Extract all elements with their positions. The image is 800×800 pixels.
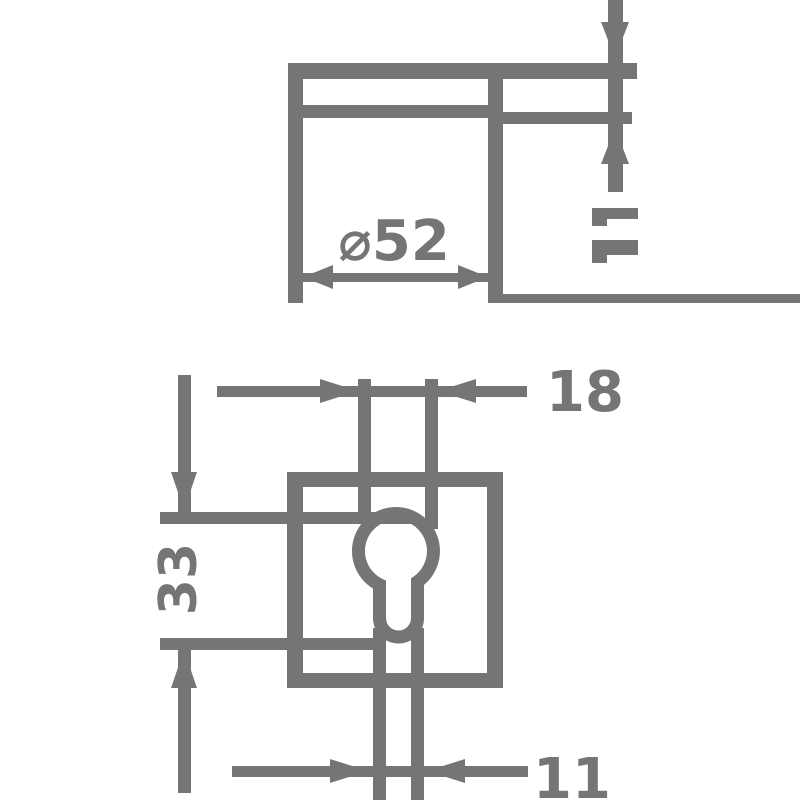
top-dimension-line [217,386,527,397]
side-left-edge-line [288,63,303,303]
keyhole-bottom-extension-line [160,638,385,650]
square-plate-outline [287,472,503,688]
keyhole-stem-width-label: 11 [533,747,611,800]
clipped-dimension-label-mark [592,240,638,263]
diameter-arrow-left-icon [303,265,333,289]
keyhole-outline [358,514,433,637]
diameter-dimension-label: ⌀52 [338,209,450,274]
keyhole-width-extension-left [358,379,371,521]
side-profile-view: ⌀52 [288,0,800,303]
dimension-drawing: ⌀52 [0,0,800,800]
thickness-arrow-down-icon [601,22,629,58]
keyhole-height-label: 33 [149,543,209,615]
front-view: 18 33 11 [149,360,624,800]
bottom-dimension-arrow-left-icon [427,759,465,783]
technical-drawing-canvas: ⌀52 [0,0,800,800]
bottom-dimension-arrow-right-icon [330,759,368,783]
diameter-arrow-right-icon [458,265,488,289]
left-dimension-arrow-up-icon [171,650,197,688]
keyhole-width-extension-right [425,379,438,529]
side-top-edge-line [288,63,637,79]
mounting-surface-line [503,294,800,303]
thickness-arrow-up-icon [601,128,629,164]
bottom-dimension-line [232,766,528,777]
keyhole-top-extension-line [160,512,415,524]
top-dimension-arrow-right-icon [320,379,358,403]
side-inner-left-line [303,105,488,118]
keyhole-width-label: 18 [546,360,624,425]
top-dimension-arrow-left-icon [438,379,476,403]
side-right-edge-line [488,63,503,303]
left-dimension-arrow-down-icon [171,472,197,510]
clipped-dimension-label-mark [592,208,638,226]
